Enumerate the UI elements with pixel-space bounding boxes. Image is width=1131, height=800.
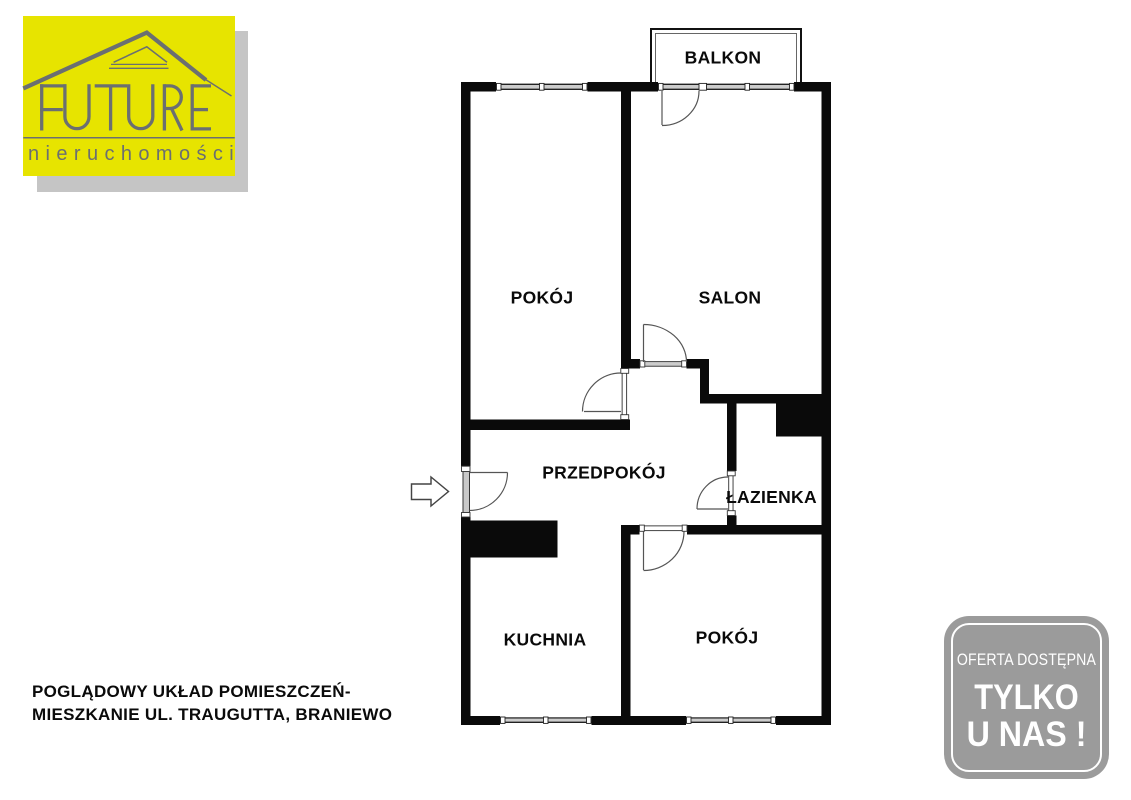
svg-text:POKÓJ: POKÓJ <box>696 627 759 648</box>
svg-text:ŁAZIENKA: ŁAZIENKA <box>726 487 817 507</box>
svg-text:SALON: SALON <box>699 288 762 308</box>
svg-text:BALKON: BALKON <box>685 48 762 68</box>
svg-text:KUCHNIA: KUCHNIA <box>504 630 587 650</box>
svg-text:PRZEDPOKÓJ: PRZEDPOKÓJ <box>542 462 666 483</box>
svg-text:POKÓJ: POKÓJ <box>511 287 574 308</box>
